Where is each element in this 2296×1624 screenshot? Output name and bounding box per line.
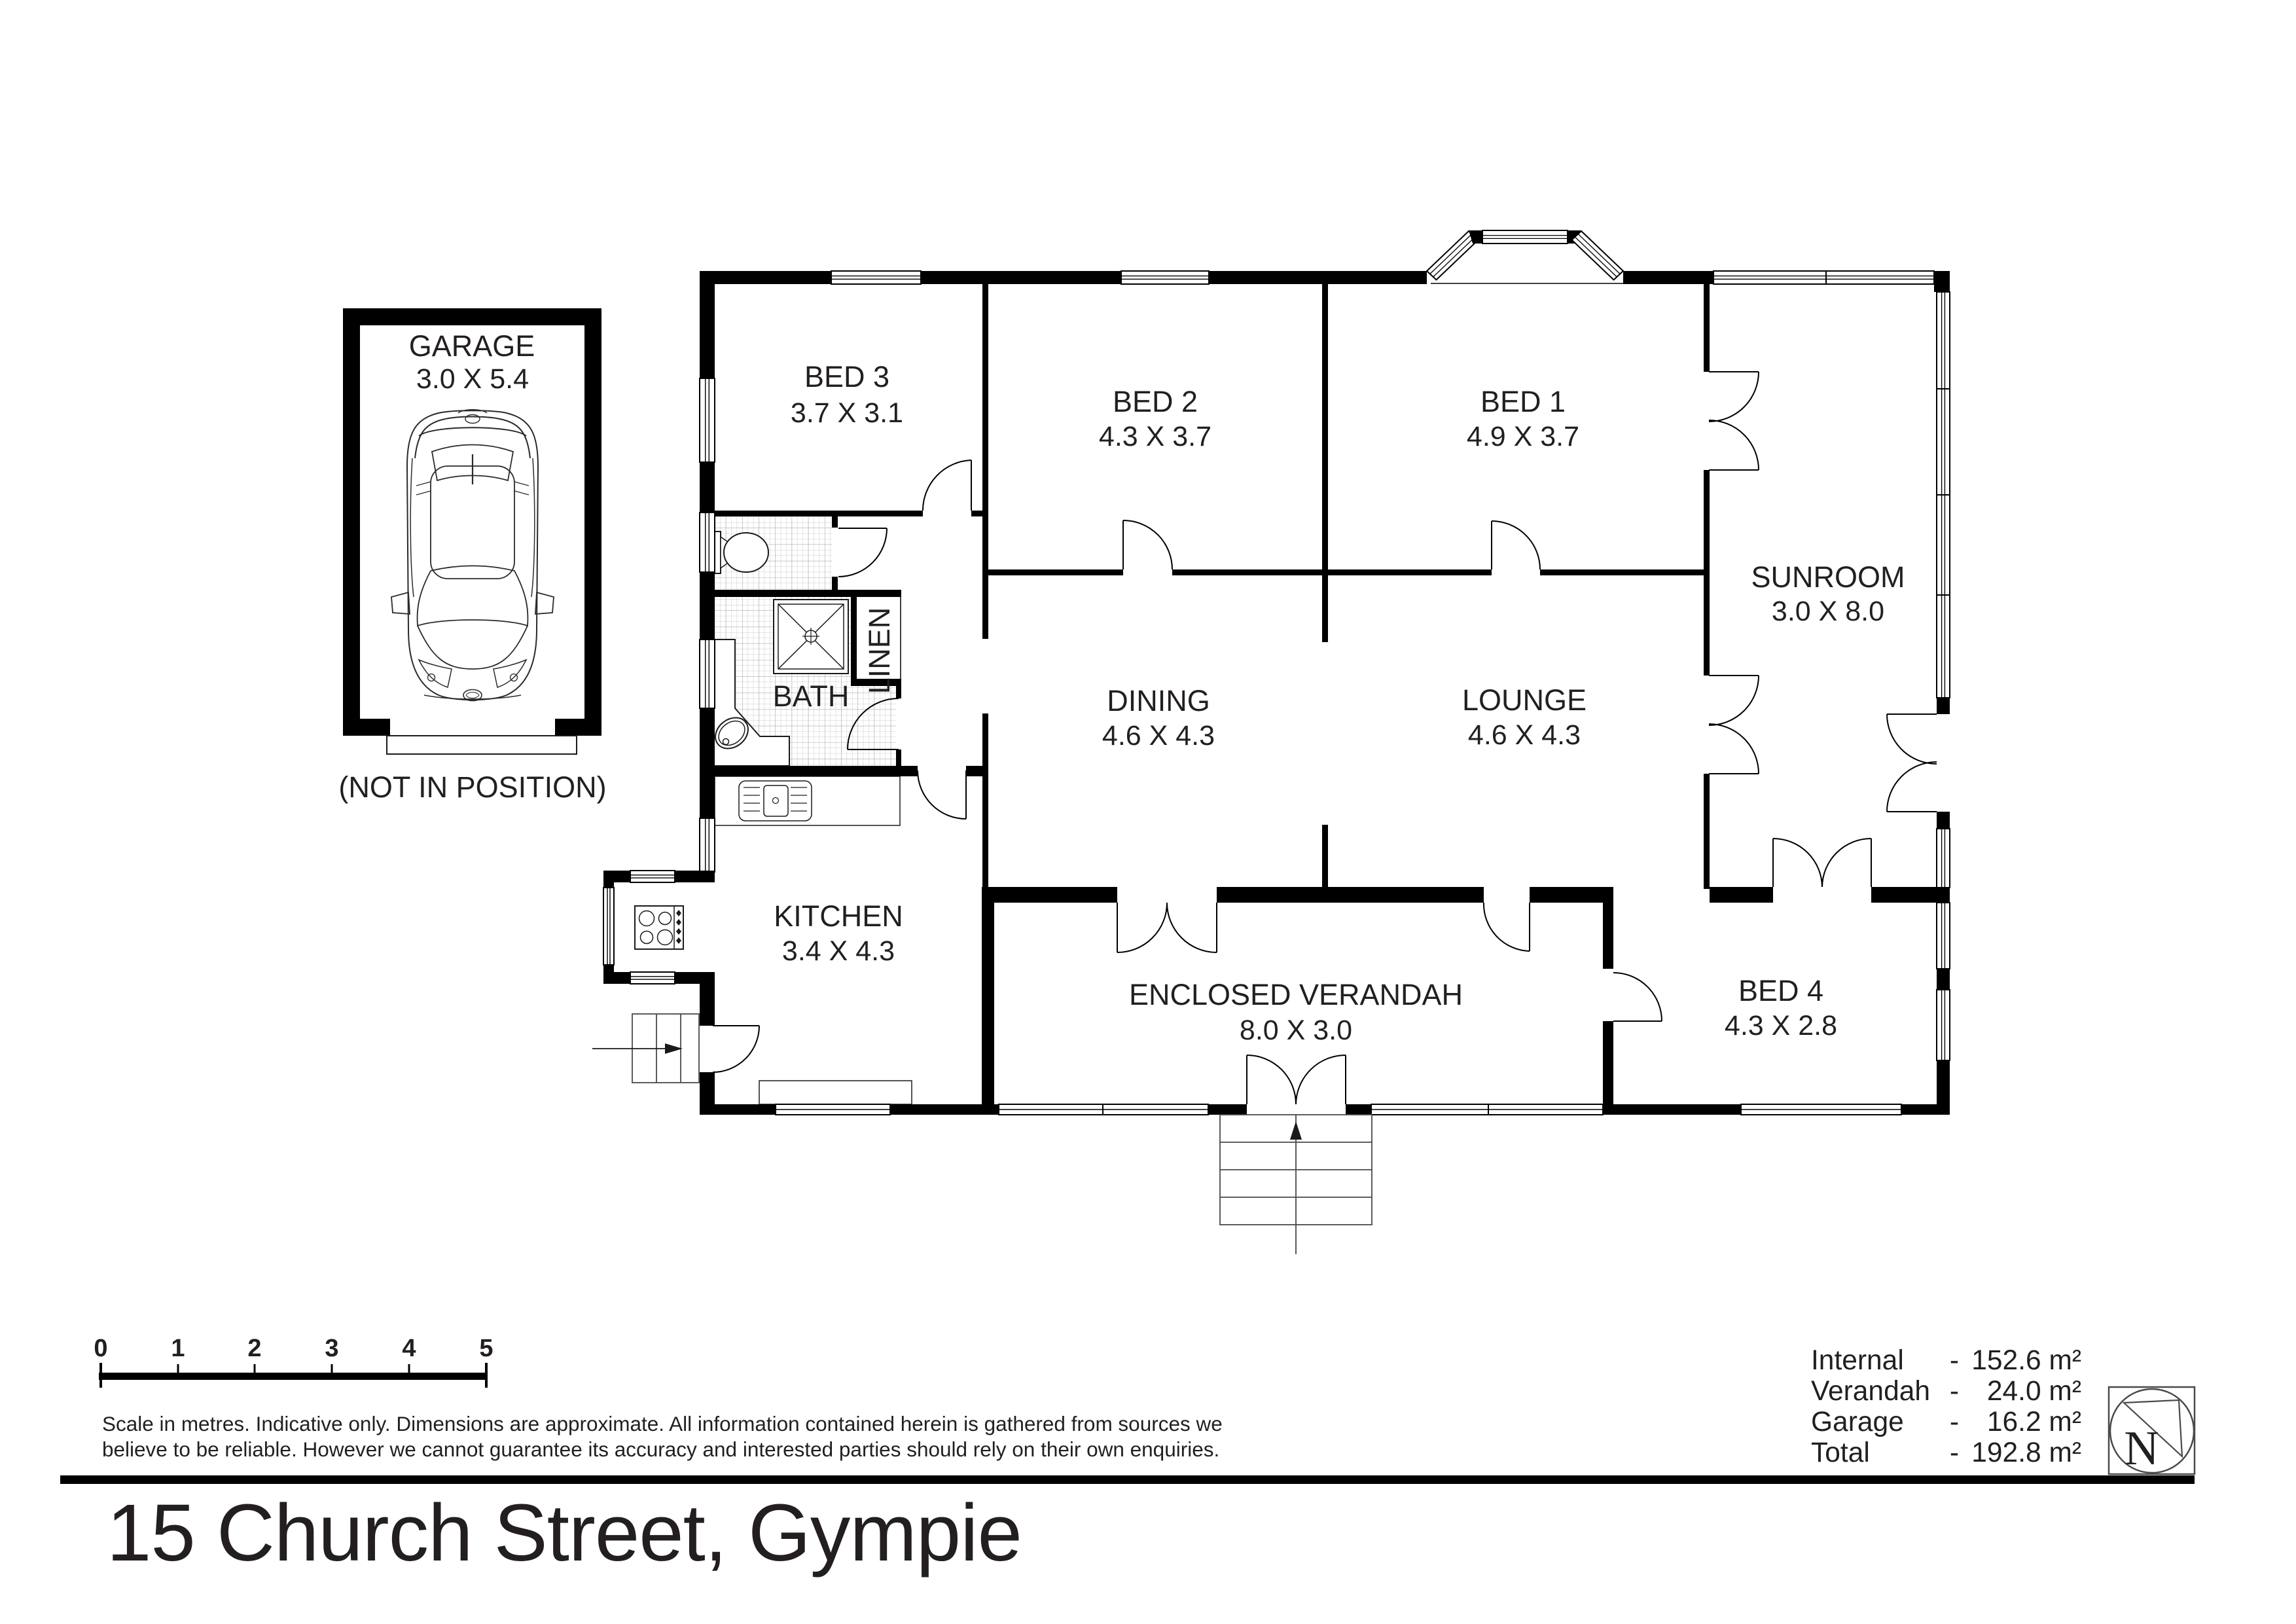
svg-text:4.6 X 4.3: 4.6 X 4.3 xyxy=(1102,720,1215,751)
svg-text:2: 2 xyxy=(247,1335,261,1362)
svg-text:0: 0 xyxy=(94,1335,107,1362)
svg-text:Verandah: Verandah xyxy=(1811,1376,1930,1407)
svg-text:BED 3: BED 3 xyxy=(804,360,889,393)
svg-text:16.2 m²: 16.2 m² xyxy=(1987,1407,2081,1437)
svg-text:4.9 X 3.7: 4.9 X 3.7 xyxy=(1467,421,1579,452)
svg-text:(NOT IN POSITION): (NOT IN POSITION) xyxy=(338,770,606,804)
svg-text:Total: Total xyxy=(1811,1437,1870,1468)
svg-text:4: 4 xyxy=(402,1335,416,1362)
svg-text:3: 3 xyxy=(325,1335,338,1362)
svg-text:-: - xyxy=(1950,1376,1959,1407)
svg-text:BED 2: BED 2 xyxy=(1113,385,1198,418)
svg-text:192.8 m²: 192.8 m² xyxy=(1971,1437,2081,1468)
svg-text:BATH: BATH xyxy=(773,679,850,713)
svg-text:Garage: Garage xyxy=(1811,1407,1904,1437)
svg-text:KITCHEN: KITCHEN xyxy=(774,899,903,933)
svg-text:5: 5 xyxy=(479,1335,493,1362)
svg-text:LOUNGE: LOUNGE xyxy=(1462,683,1587,717)
svg-text:4.6 X 4.3: 4.6 X 4.3 xyxy=(1468,719,1581,751)
svg-text:ENCLOSED VERANDAH: ENCLOSED VERANDAH xyxy=(1129,978,1463,1011)
svg-text:3.7 X 3.1: 3.7 X 3.1 xyxy=(791,397,903,429)
svg-text:Scale in metres. Indicative on: Scale in metres. Indicative only. Dimens… xyxy=(102,1412,1223,1435)
svg-text:N: N xyxy=(2124,1422,2159,1475)
svg-text:3.0 X 5.4: 3.0 X 5.4 xyxy=(416,363,529,395)
svg-text:4.3 X 3.7: 4.3 X 3.7 xyxy=(1099,421,1211,452)
svg-text:BED 1: BED 1 xyxy=(1480,385,1566,418)
svg-text:Internal: Internal xyxy=(1811,1345,1904,1376)
svg-text:3.4 X 4.3: 3.4 X 4.3 xyxy=(782,935,895,967)
svg-text:4.3 X 2.8: 4.3 X 2.8 xyxy=(1725,1010,1837,1041)
svg-text:1: 1 xyxy=(171,1335,185,1362)
svg-text:15 Church Street, Gympie: 15 Church Street, Gympie xyxy=(107,1489,1022,1578)
svg-text:DINING: DINING xyxy=(1107,684,1210,717)
svg-text:SUNROOM: SUNROOM xyxy=(1751,560,1905,594)
svg-text:152.6 m²: 152.6 m² xyxy=(1971,1345,2081,1376)
svg-text:3.0 X 8.0: 3.0 X 8.0 xyxy=(1772,596,1884,627)
svg-text:GARAGE: GARAGE xyxy=(409,329,535,363)
svg-text:-: - xyxy=(1950,1345,1959,1376)
svg-text:believe to be reliable. Howeve: believe to be reliable. However we canno… xyxy=(102,1437,1219,1461)
svg-text:LINEN: LINEN xyxy=(863,607,896,695)
svg-text:-: - xyxy=(1950,1437,1959,1468)
svg-text:BED 4: BED 4 xyxy=(1738,974,1823,1007)
svg-text:-: - xyxy=(1950,1407,1959,1437)
svg-text:24.0 m²: 24.0 m² xyxy=(1987,1376,2081,1407)
svg-text:8.0 X 3.0: 8.0 X 3.0 xyxy=(1240,1015,1352,1046)
